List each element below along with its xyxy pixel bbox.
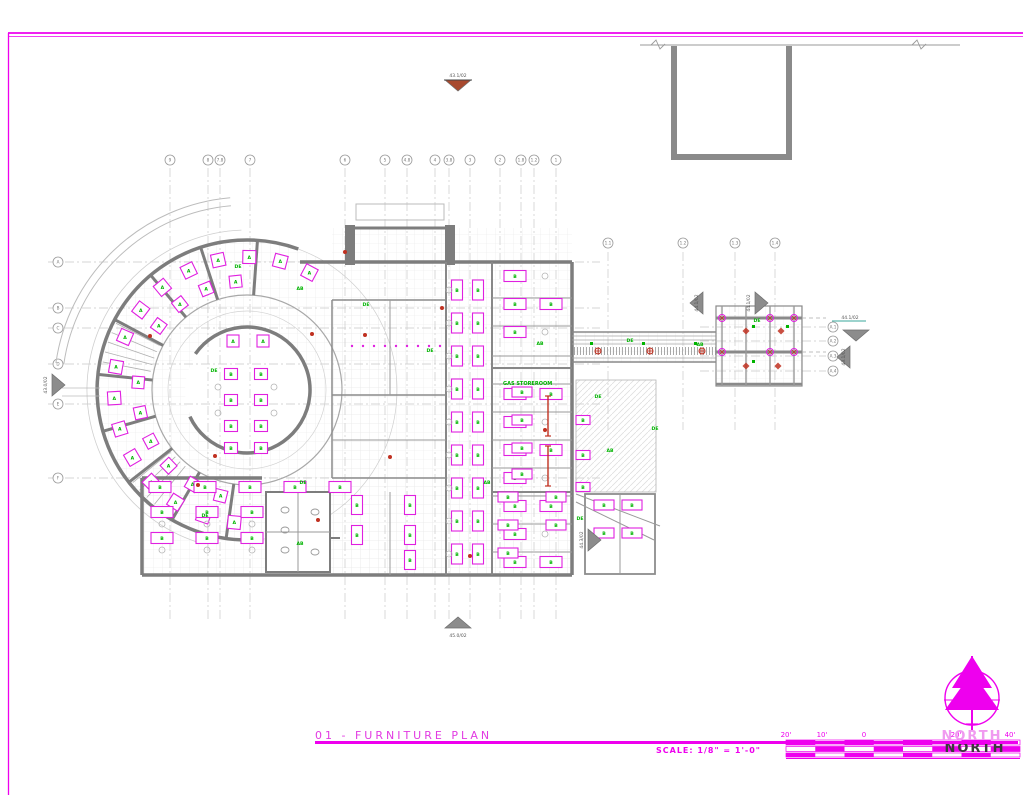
svg-text:DE: DE	[627, 338, 634, 344]
svg-text:8: 8	[207, 158, 210, 163]
svg-text:B: B	[248, 485, 252, 491]
svg-text:B: B	[160, 510, 164, 516]
scale-prefix: SCALE:	[656, 746, 694, 755]
svg-text:10': 10'	[817, 731, 828, 739]
svg-text:7.8: 7.8	[217, 158, 224, 163]
svg-text:B: B	[455, 288, 459, 294]
ceiling-grid	[97, 228, 802, 575]
svg-text:A: A	[219, 494, 223, 500]
section-marker: 43.1/02	[837, 346, 850, 368]
svg-text:A: A	[248, 255, 252, 261]
svg-text:5: 5	[384, 158, 387, 163]
svg-text:43.1/02: 43.1/02	[841, 348, 847, 365]
svg-text:B: B	[455, 321, 459, 327]
svg-text:A: A	[234, 279, 238, 285]
svg-text:B: B	[229, 424, 233, 430]
svg-text:B: B	[408, 503, 412, 509]
svg-text:B: B	[476, 288, 480, 294]
svg-text:DE: DE	[202, 513, 209, 519]
svg-text:B: B	[581, 418, 585, 424]
svg-text:B: B	[520, 446, 524, 452]
floor-plan-canvas: 987.87654.843.8321.81.21ABCDEF1.11.21.31…	[0, 0, 1024, 800]
svg-text:A: A	[216, 258, 220, 264]
svg-text:A: A	[118, 427, 122, 433]
svg-text:AB: AB	[696, 342, 704, 348]
svg-text:B: B	[581, 485, 585, 491]
svg-text:3: 3	[469, 158, 472, 163]
svg-text:A: A	[123, 335, 127, 341]
svg-text:DE: DE	[211, 368, 218, 374]
svg-text:A: A	[174, 500, 178, 506]
svg-text:B: B	[506, 495, 510, 501]
scale-note: SCALE: 1/8" = 1'-0"	[656, 746, 761, 755]
svg-text:A: A	[167, 464, 171, 470]
svg-text:A: A	[114, 365, 118, 371]
svg-text:B: B	[602, 503, 606, 509]
svg-text:B: B	[455, 486, 459, 492]
svg-text:B: B	[476, 321, 480, 327]
svg-text:A: A	[261, 339, 265, 345]
svg-text:B: B	[506, 523, 510, 529]
section-marker: 43.0/02	[43, 374, 65, 396]
svg-text:B: B	[520, 418, 524, 424]
svg-text:B: B	[476, 453, 480, 459]
svg-text:E: E	[57, 402, 60, 407]
svg-text:B: B	[513, 330, 517, 336]
svg-text:4.8: 4.8	[404, 158, 411, 163]
svg-text:B: B	[455, 519, 459, 525]
svg-text:B: B	[293, 485, 297, 491]
svg-text:3.8: 3.8	[446, 158, 453, 163]
svg-text:A: A	[231, 339, 235, 345]
svg-text:B: B	[57, 306, 60, 311]
svg-text:B: B	[455, 387, 459, 393]
svg-text:B: B	[549, 504, 553, 510]
svg-text:A: A	[178, 302, 182, 308]
svg-text:B: B	[513, 532, 517, 538]
svg-text:1.2: 1.2	[531, 158, 538, 163]
svg-text:B: B	[549, 560, 553, 566]
svg-text:B: B	[455, 552, 459, 558]
svg-text:A: A	[131, 455, 135, 461]
svg-text:1.8: 1.8	[518, 158, 525, 163]
scale-value: 1/8" = 1'-0"	[697, 746, 761, 755]
svg-text:B: B	[160, 536, 164, 542]
svg-text:B: B	[259, 424, 263, 430]
svg-text:20': 20'	[781, 731, 792, 739]
svg-text:B: B	[549, 448, 553, 454]
svg-text:A.4: A.4	[830, 369, 837, 374]
svg-text:A: A	[308, 270, 312, 276]
svg-text:B: B	[158, 485, 162, 491]
svg-text:44.1/02: 44.1/02	[746, 294, 752, 311]
svg-text:AB: AB	[296, 541, 304, 547]
drawing-sheet: 987.87654.843.8321.81.21ABCDEF1.11.21.31…	[0, 0, 1024, 800]
svg-text:GAS STOREROOM: GAS STOREROOM	[503, 381, 552, 387]
svg-text:D: D	[56, 362, 59, 367]
svg-text:B: B	[355, 533, 359, 539]
svg-text:AB: AB	[483, 480, 491, 486]
svg-text:DE: DE	[300, 480, 307, 486]
svg-text:B: B	[476, 420, 480, 426]
svg-text:B: B	[408, 533, 412, 539]
svg-text:B: B	[229, 398, 233, 404]
svg-text:A: A	[136, 380, 140, 386]
top-detail-box	[640, 40, 960, 157]
svg-text:B: B	[630, 531, 634, 537]
svg-text:B: B	[355, 503, 359, 509]
svg-text:B: B	[338, 485, 342, 491]
svg-text:0: 0	[862, 731, 866, 739]
svg-text:A: A	[57, 260, 60, 265]
svg-text:B: B	[520, 472, 524, 478]
svg-text:A.3: A.3	[830, 354, 837, 359]
svg-text:C: C	[57, 326, 60, 331]
svg-text:DE: DE	[577, 516, 584, 522]
section-marker: 43.1/02	[444, 73, 472, 91]
svg-text:B: B	[554, 495, 558, 501]
svg-text:6: 6	[344, 158, 347, 163]
svg-text:DE: DE	[754, 318, 761, 324]
svg-text:AB: AB	[296, 286, 304, 292]
svg-text:B: B	[259, 398, 263, 404]
section-marker: 44.1/02	[690, 292, 703, 314]
svg-text:B: B	[455, 354, 459, 360]
svg-text:B: B	[549, 392, 553, 398]
svg-text:40': 40'	[1005, 731, 1016, 739]
svg-text:B: B	[229, 372, 233, 378]
svg-text:4: 4	[434, 158, 437, 163]
svg-text:B: B	[476, 387, 480, 393]
svg-text:44.1/02: 44.1/02	[694, 294, 700, 311]
svg-text:45.0/02: 45.0/02	[449, 633, 466, 639]
svg-text:B: B	[513, 504, 517, 510]
svg-text:DE: DE	[652, 426, 659, 432]
svg-text:B: B	[630, 503, 634, 509]
svg-text:B: B	[250, 510, 254, 516]
svg-text:A: A	[279, 259, 283, 265]
svg-text:B: B	[513, 302, 517, 308]
svg-text:A: A	[187, 268, 191, 274]
svg-text:B: B	[476, 519, 480, 525]
svg-text:B: B	[229, 446, 233, 452]
svg-text:A: A	[139, 410, 143, 416]
svg-text:B: B	[476, 552, 480, 558]
svg-text:44.3/02: 44.3/02	[579, 531, 585, 548]
svg-text:43.0/02: 43.0/02	[43, 376, 49, 393]
svg-text:B: B	[408, 558, 412, 564]
svg-text:9: 9	[169, 158, 172, 163]
svg-text:43.1/02: 43.1/02	[449, 73, 466, 79]
svg-text:B: B	[250, 536, 254, 542]
svg-text:B: B	[476, 354, 480, 360]
svg-text:2: 2	[499, 158, 502, 163]
svg-text:B: B	[602, 531, 606, 537]
svg-text:1.3: 1.3	[732, 241, 739, 246]
svg-text:B: B	[554, 523, 558, 529]
svg-text:DE: DE	[363, 302, 370, 308]
svg-text:B: B	[205, 536, 209, 542]
svg-text:B: B	[513, 274, 517, 280]
svg-text:B: B	[455, 453, 459, 459]
svg-text:AB: AB	[606, 448, 614, 454]
svg-text:A.1: A.1	[830, 325, 837, 330]
svg-text:B: B	[520, 390, 524, 396]
svg-text:B: B	[259, 372, 263, 378]
svg-text:B: B	[259, 446, 263, 452]
title-underline	[315, 741, 1018, 744]
svg-text:A: A	[112, 396, 116, 402]
svg-text:A: A	[161, 285, 165, 291]
svg-text:1.4: 1.4	[772, 241, 779, 246]
svg-text:B: B	[581, 453, 585, 459]
svg-text:1.2: 1.2	[680, 241, 687, 246]
svg-text:A: A	[157, 324, 161, 330]
svg-text:A: A	[139, 308, 143, 314]
svg-text:B: B	[513, 560, 517, 566]
svg-text:7: 7	[249, 158, 252, 163]
svg-text:B: B	[455, 420, 459, 426]
svg-text:DE: DE	[427, 348, 434, 354]
svg-text:A: A	[204, 287, 208, 293]
svg-text:B: B	[203, 485, 207, 491]
svg-text:1: 1	[555, 158, 558, 163]
svg-text:AB: AB	[536, 341, 544, 347]
svg-text:A: A	[232, 520, 236, 526]
section-marker: 45.0/02	[445, 617, 471, 639]
svg-text:DE: DE	[595, 394, 602, 400]
svg-text:1.1: 1.1	[605, 241, 612, 246]
svg-text:DE: DE	[235, 264, 242, 270]
svg-text:44.1/02: 44.1/02	[841, 315, 858, 321]
svg-text:B: B	[506, 551, 510, 557]
svg-text:B: B	[476, 486, 480, 492]
svg-text:B: B	[549, 302, 553, 308]
svg-text:A.2: A.2	[830, 339, 837, 344]
svg-text:A: A	[149, 439, 153, 445]
